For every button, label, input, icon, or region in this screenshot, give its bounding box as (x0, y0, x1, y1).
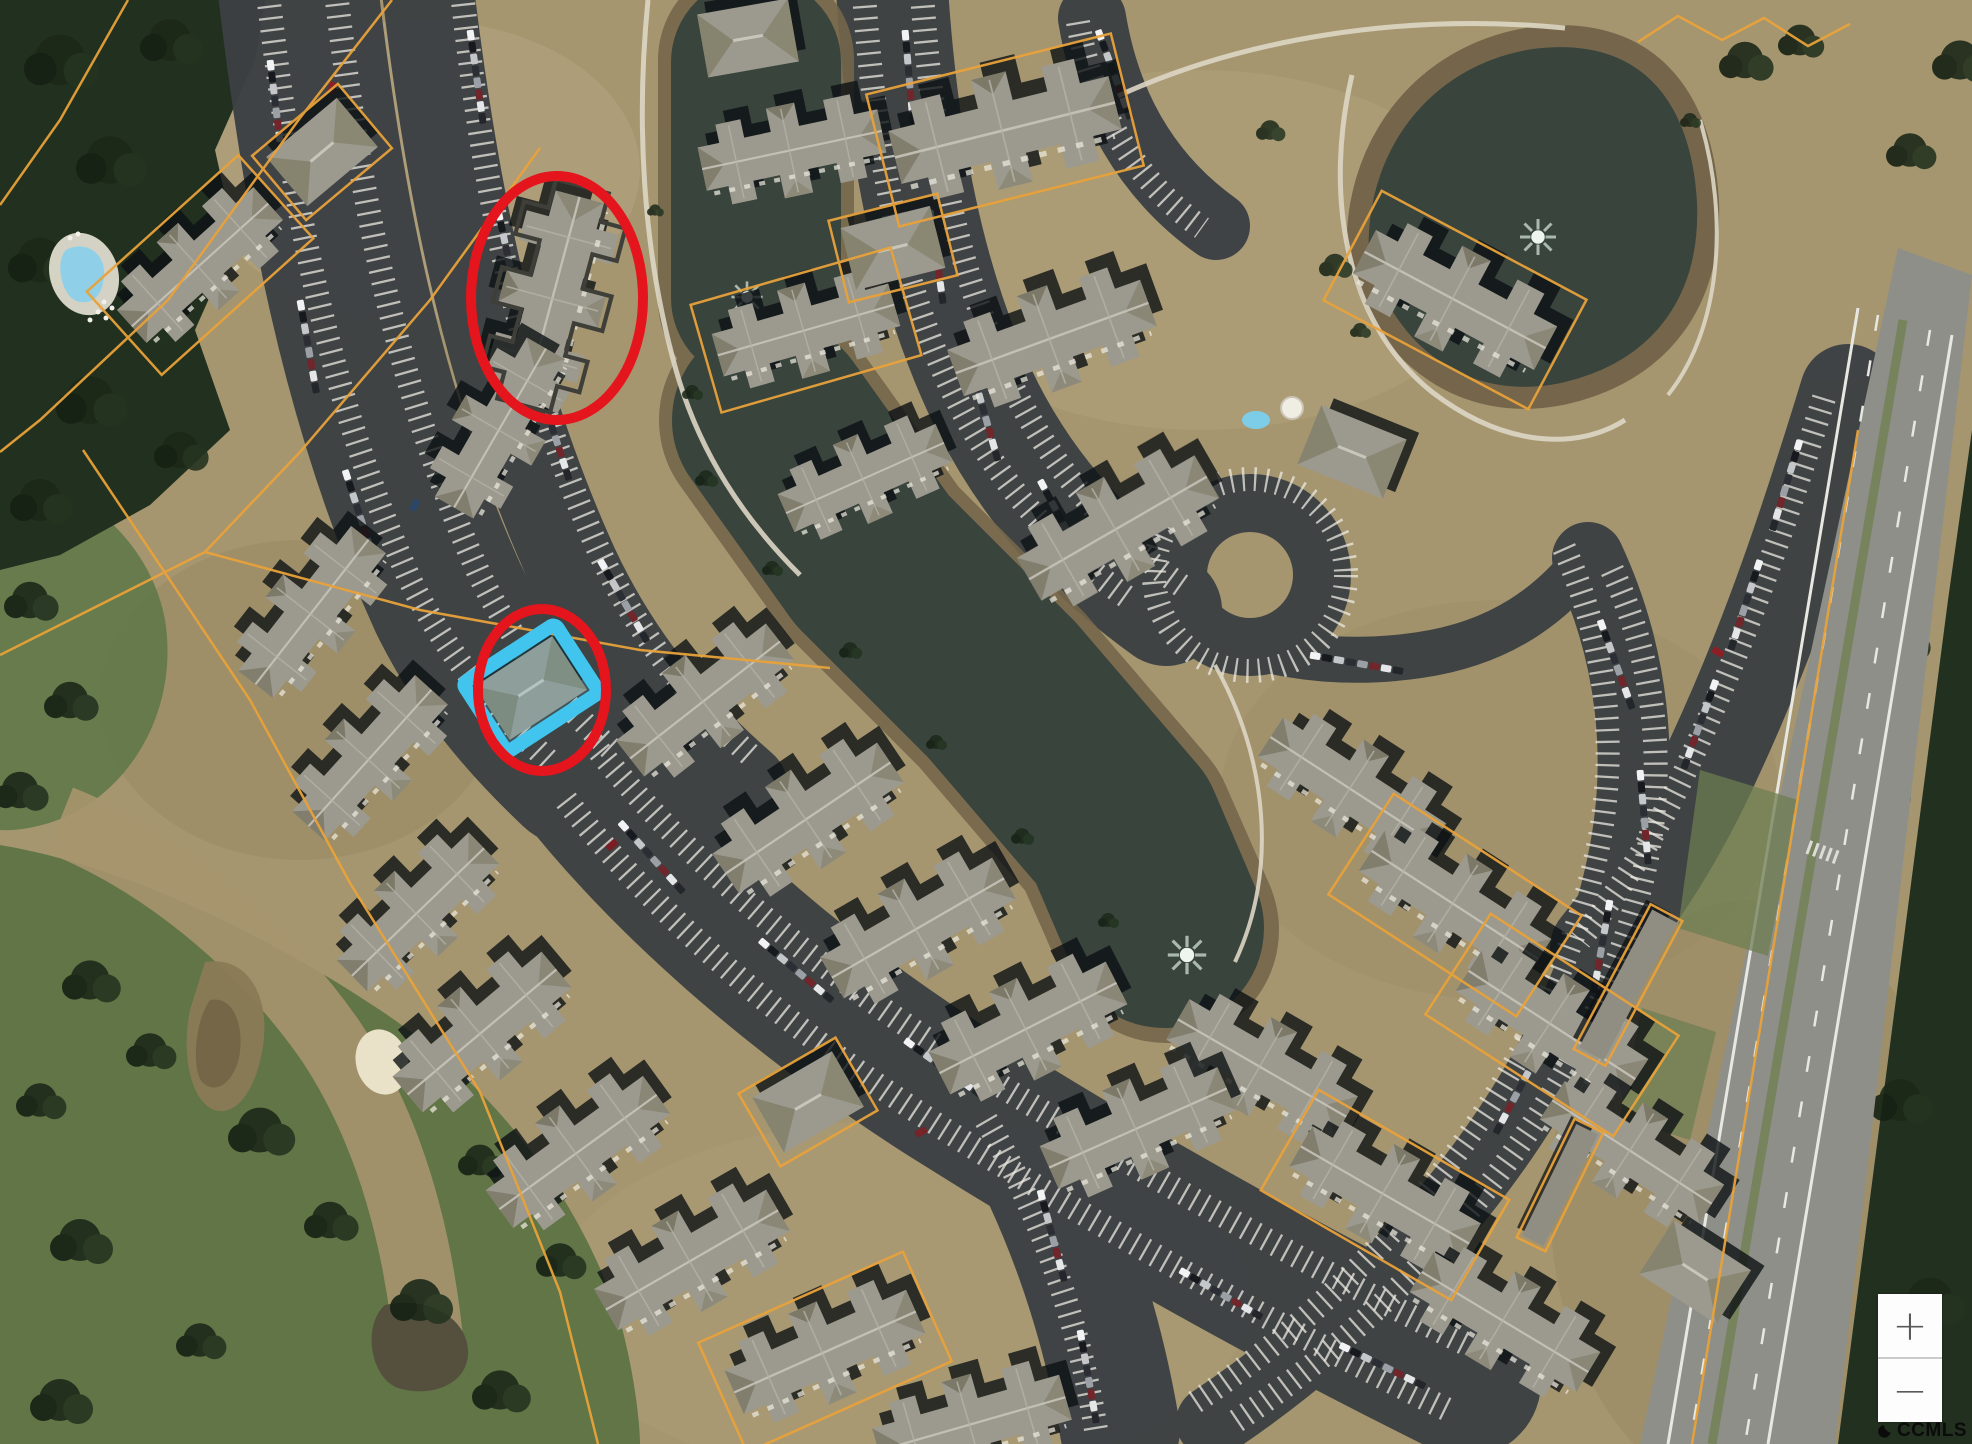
zoom-in-button[interactable]: + (1878, 1294, 1942, 1357)
zoom-control: + − (1878, 1294, 1942, 1422)
zoom-out-button[interactable]: − (1878, 1359, 1942, 1422)
crescent-wave-icon (1876, 1423, 1893, 1440)
watermark-text: CCMLS (1897, 1420, 1967, 1442)
gazebo (1281, 397, 1303, 419)
small-pool (1242, 411, 1270, 429)
map-viewport: + − CCMLS (0, 0, 1972, 1444)
aerial-map[interactable] (0, 0, 1972, 1444)
watermark: CCMLS (1876, 1420, 1967, 1442)
culdesac-island (1222, 547, 1278, 603)
